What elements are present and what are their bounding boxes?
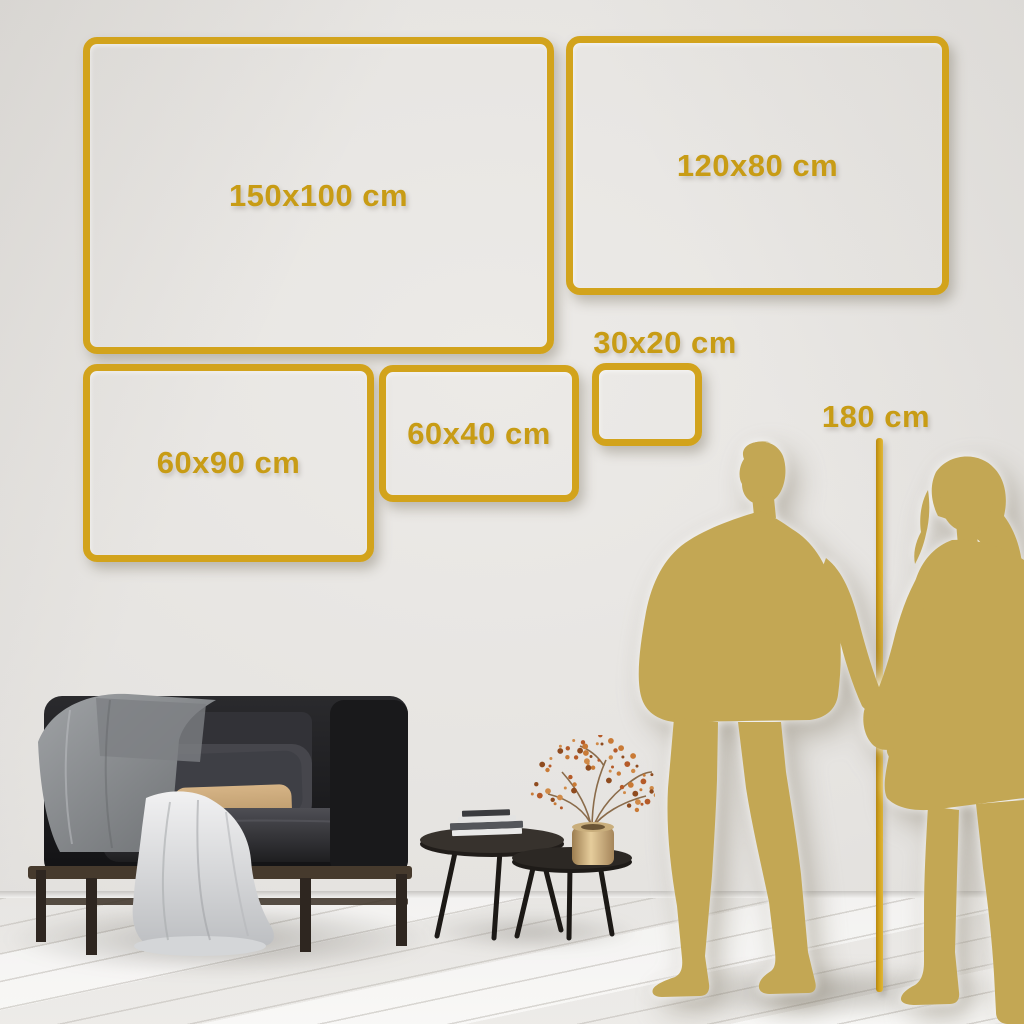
height-reference-label: 180 cm [822, 399, 930, 434]
size-label-60x90: 60x90 cm [157, 445, 301, 481]
size-frame-120x80: 120x80 cm [566, 36, 949, 295]
size-frame-30x20 [592, 363, 702, 446]
sofa [0, 688, 445, 1024]
man-silhouette [639, 441, 907, 997]
size-label-60x40: 60x40 cm [407, 416, 551, 452]
size-frame-60x90: 60x90 cm [83, 364, 374, 562]
couple-silhouette [600, 435, 1024, 1024]
size-label-30x20-wrap: 30x20 cm [575, 325, 755, 361]
size-frame-150x100: 150x100 cm [83, 37, 554, 354]
size-label-30x20: 30x20 cm [593, 325, 737, 360]
woman-silhouette [868, 456, 1024, 1024]
size-frame-60x40: 60x40 cm [379, 365, 579, 502]
stacked-books [450, 809, 523, 836]
size-guide-scene: 150x100 cm 120x80 cm 60x90 cm 60x40 cm 3… [0, 0, 1024, 1024]
large-coffee-table [420, 809, 564, 938]
size-label-120x80: 120x80 cm [677, 148, 838, 184]
size-label-150x100: 150x100 cm [229, 178, 408, 214]
height-reference-label-wrap: 180 cm [796, 399, 956, 435]
